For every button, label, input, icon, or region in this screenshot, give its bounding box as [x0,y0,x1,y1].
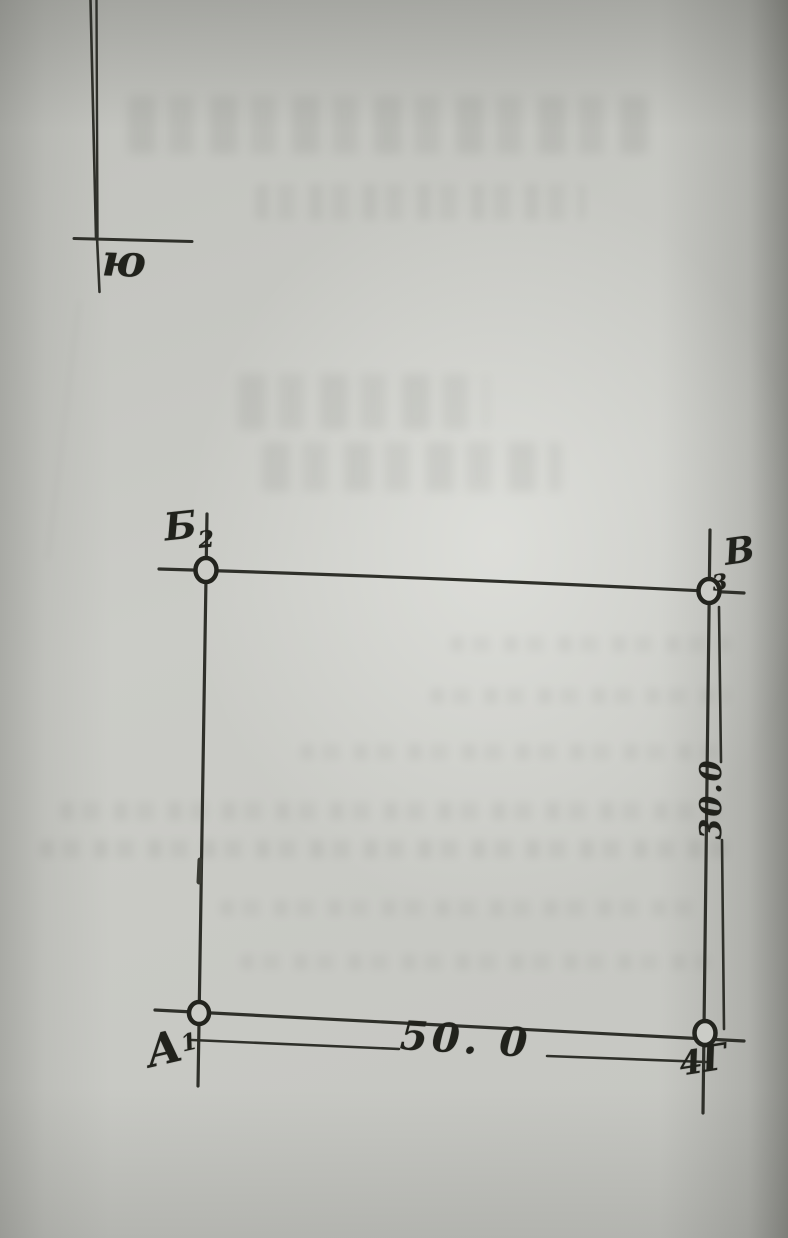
dimension-line-right-upper-segment [719,607,721,762]
meridian-line-left-stroke [91,0,97,237]
meridian-line-right-stroke [97,0,98,237]
point-marker-top-left [196,558,217,582]
point-label-bottom-right: 4Г [676,1038,729,1081]
scanned-survey-sketch-page: ю Б2 3В А1 4Г 50. 0 30.0 [0,0,788,1238]
dimension-line-bottom-left-segment [192,1040,399,1049]
point-label-top-left: Б2 [162,504,214,547]
dimension-value-bottom: 50. 0 [399,1016,533,1064]
point-label-top-right: 3В [706,531,757,573]
point-letter: Б [162,501,199,549]
dimension-value-right: 30.0 [697,754,727,844]
meridian-line-tail [97,237,100,292]
point-number: 2 [197,525,216,554]
plot-sketch-drawing [0,0,788,1238]
ink-blot [199,860,200,882]
boundary-top [159,569,744,593]
dimension-line-right-lower-segment [722,840,724,1029]
south-label: ю [101,239,147,285]
point-letter: В [721,528,757,574]
